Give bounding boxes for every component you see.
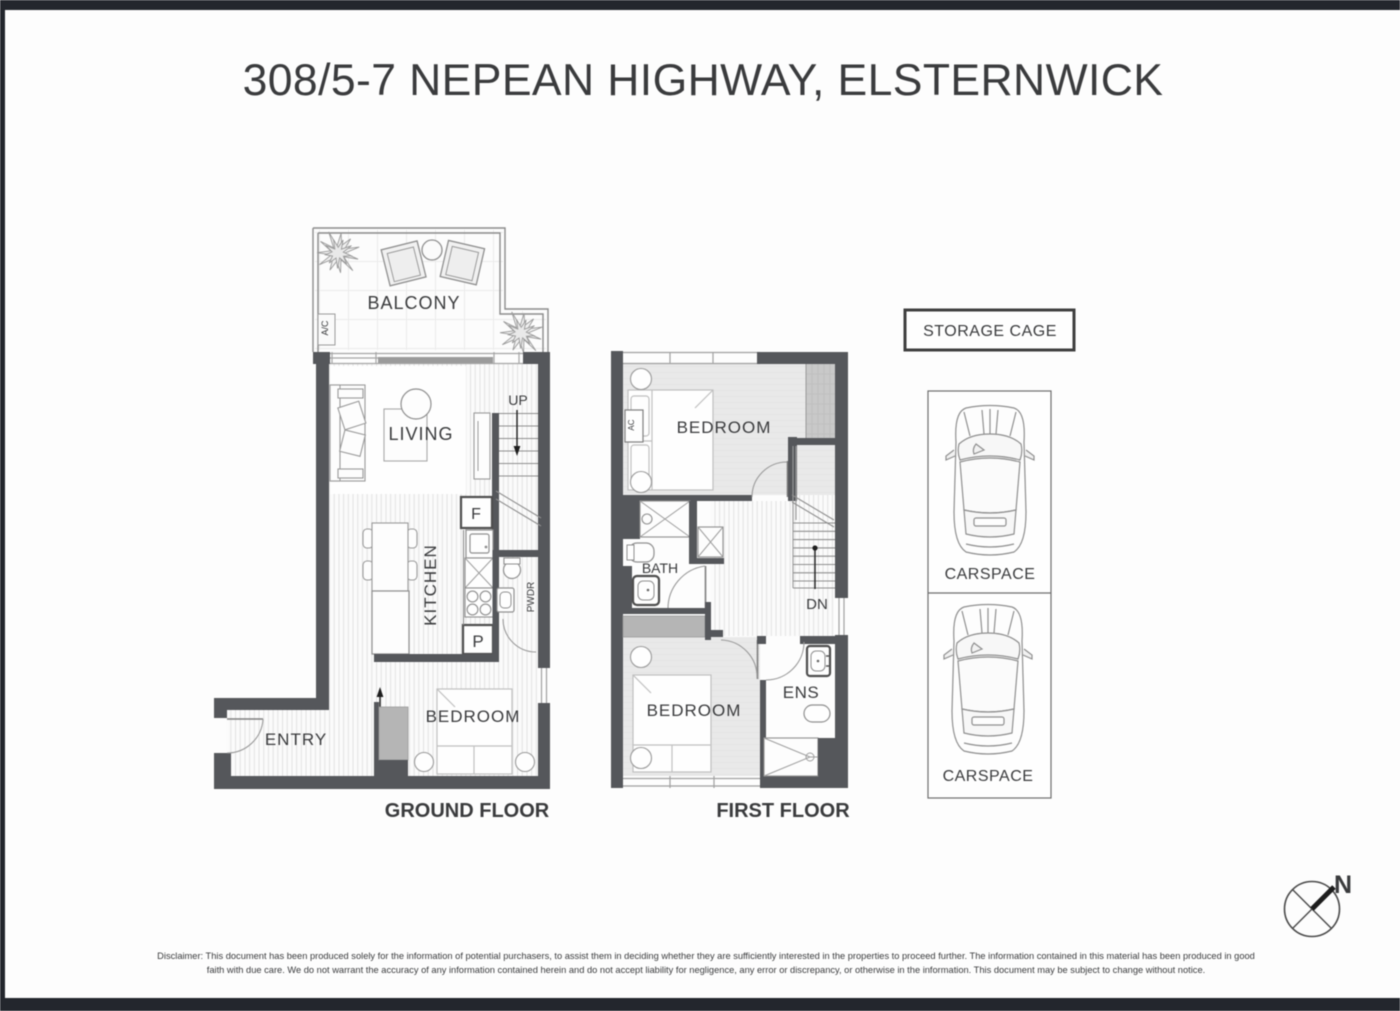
svg-text:Disclaimer: This document has: Disclaimer: This document has been produ… <box>157 951 1255 961</box>
svg-text:CARSPACE: CARSPACE <box>943 768 1034 785</box>
svg-text:BEDROOM: BEDROOM <box>647 701 742 720</box>
svg-text:KITCHEN: KITCHEN <box>421 544 440 626</box>
svg-text:BEDROOM: BEDROOM <box>426 707 521 726</box>
svg-text:BATH: BATH <box>642 560 678 576</box>
svg-text:N: N <box>1334 871 1352 899</box>
svg-text:DN: DN <box>806 596 828 613</box>
svg-text:faith with due care. We do not: faith with due care. We do not warrant t… <box>207 965 1205 975</box>
svg-text:ENTRY: ENTRY <box>265 730 327 749</box>
svg-text:BALCONY: BALCONY <box>367 293 460 313</box>
svg-text:PWDR: PWDR <box>526 582 537 613</box>
svg-text:A/C: A/C <box>320 320 330 336</box>
svg-text:LIVING: LIVING <box>388 424 453 444</box>
svg-text:STORAGE CAGE: STORAGE CAGE <box>923 323 1057 340</box>
svg-text:308/5-7 NEPEAN HIGHWAY, ELSTER: 308/5-7 NEPEAN HIGHWAY, ELSTERNWICK <box>243 56 1164 105</box>
svg-text:FIRST FLOOR: FIRST FLOOR <box>716 800 850 822</box>
svg-text:GROUND FLOOR: GROUND FLOOR <box>385 800 550 822</box>
svg-text:AC: AC <box>627 419 636 430</box>
svg-text:BEDROOM: BEDROOM <box>677 418 772 437</box>
svg-text:UP: UP <box>508 392 527 408</box>
svg-text:P: P <box>472 632 483 651</box>
svg-text:ENS: ENS <box>783 683 819 702</box>
svg-text:CARSPACE: CARSPACE <box>945 566 1036 583</box>
svg-text:F: F <box>471 506 481 523</box>
